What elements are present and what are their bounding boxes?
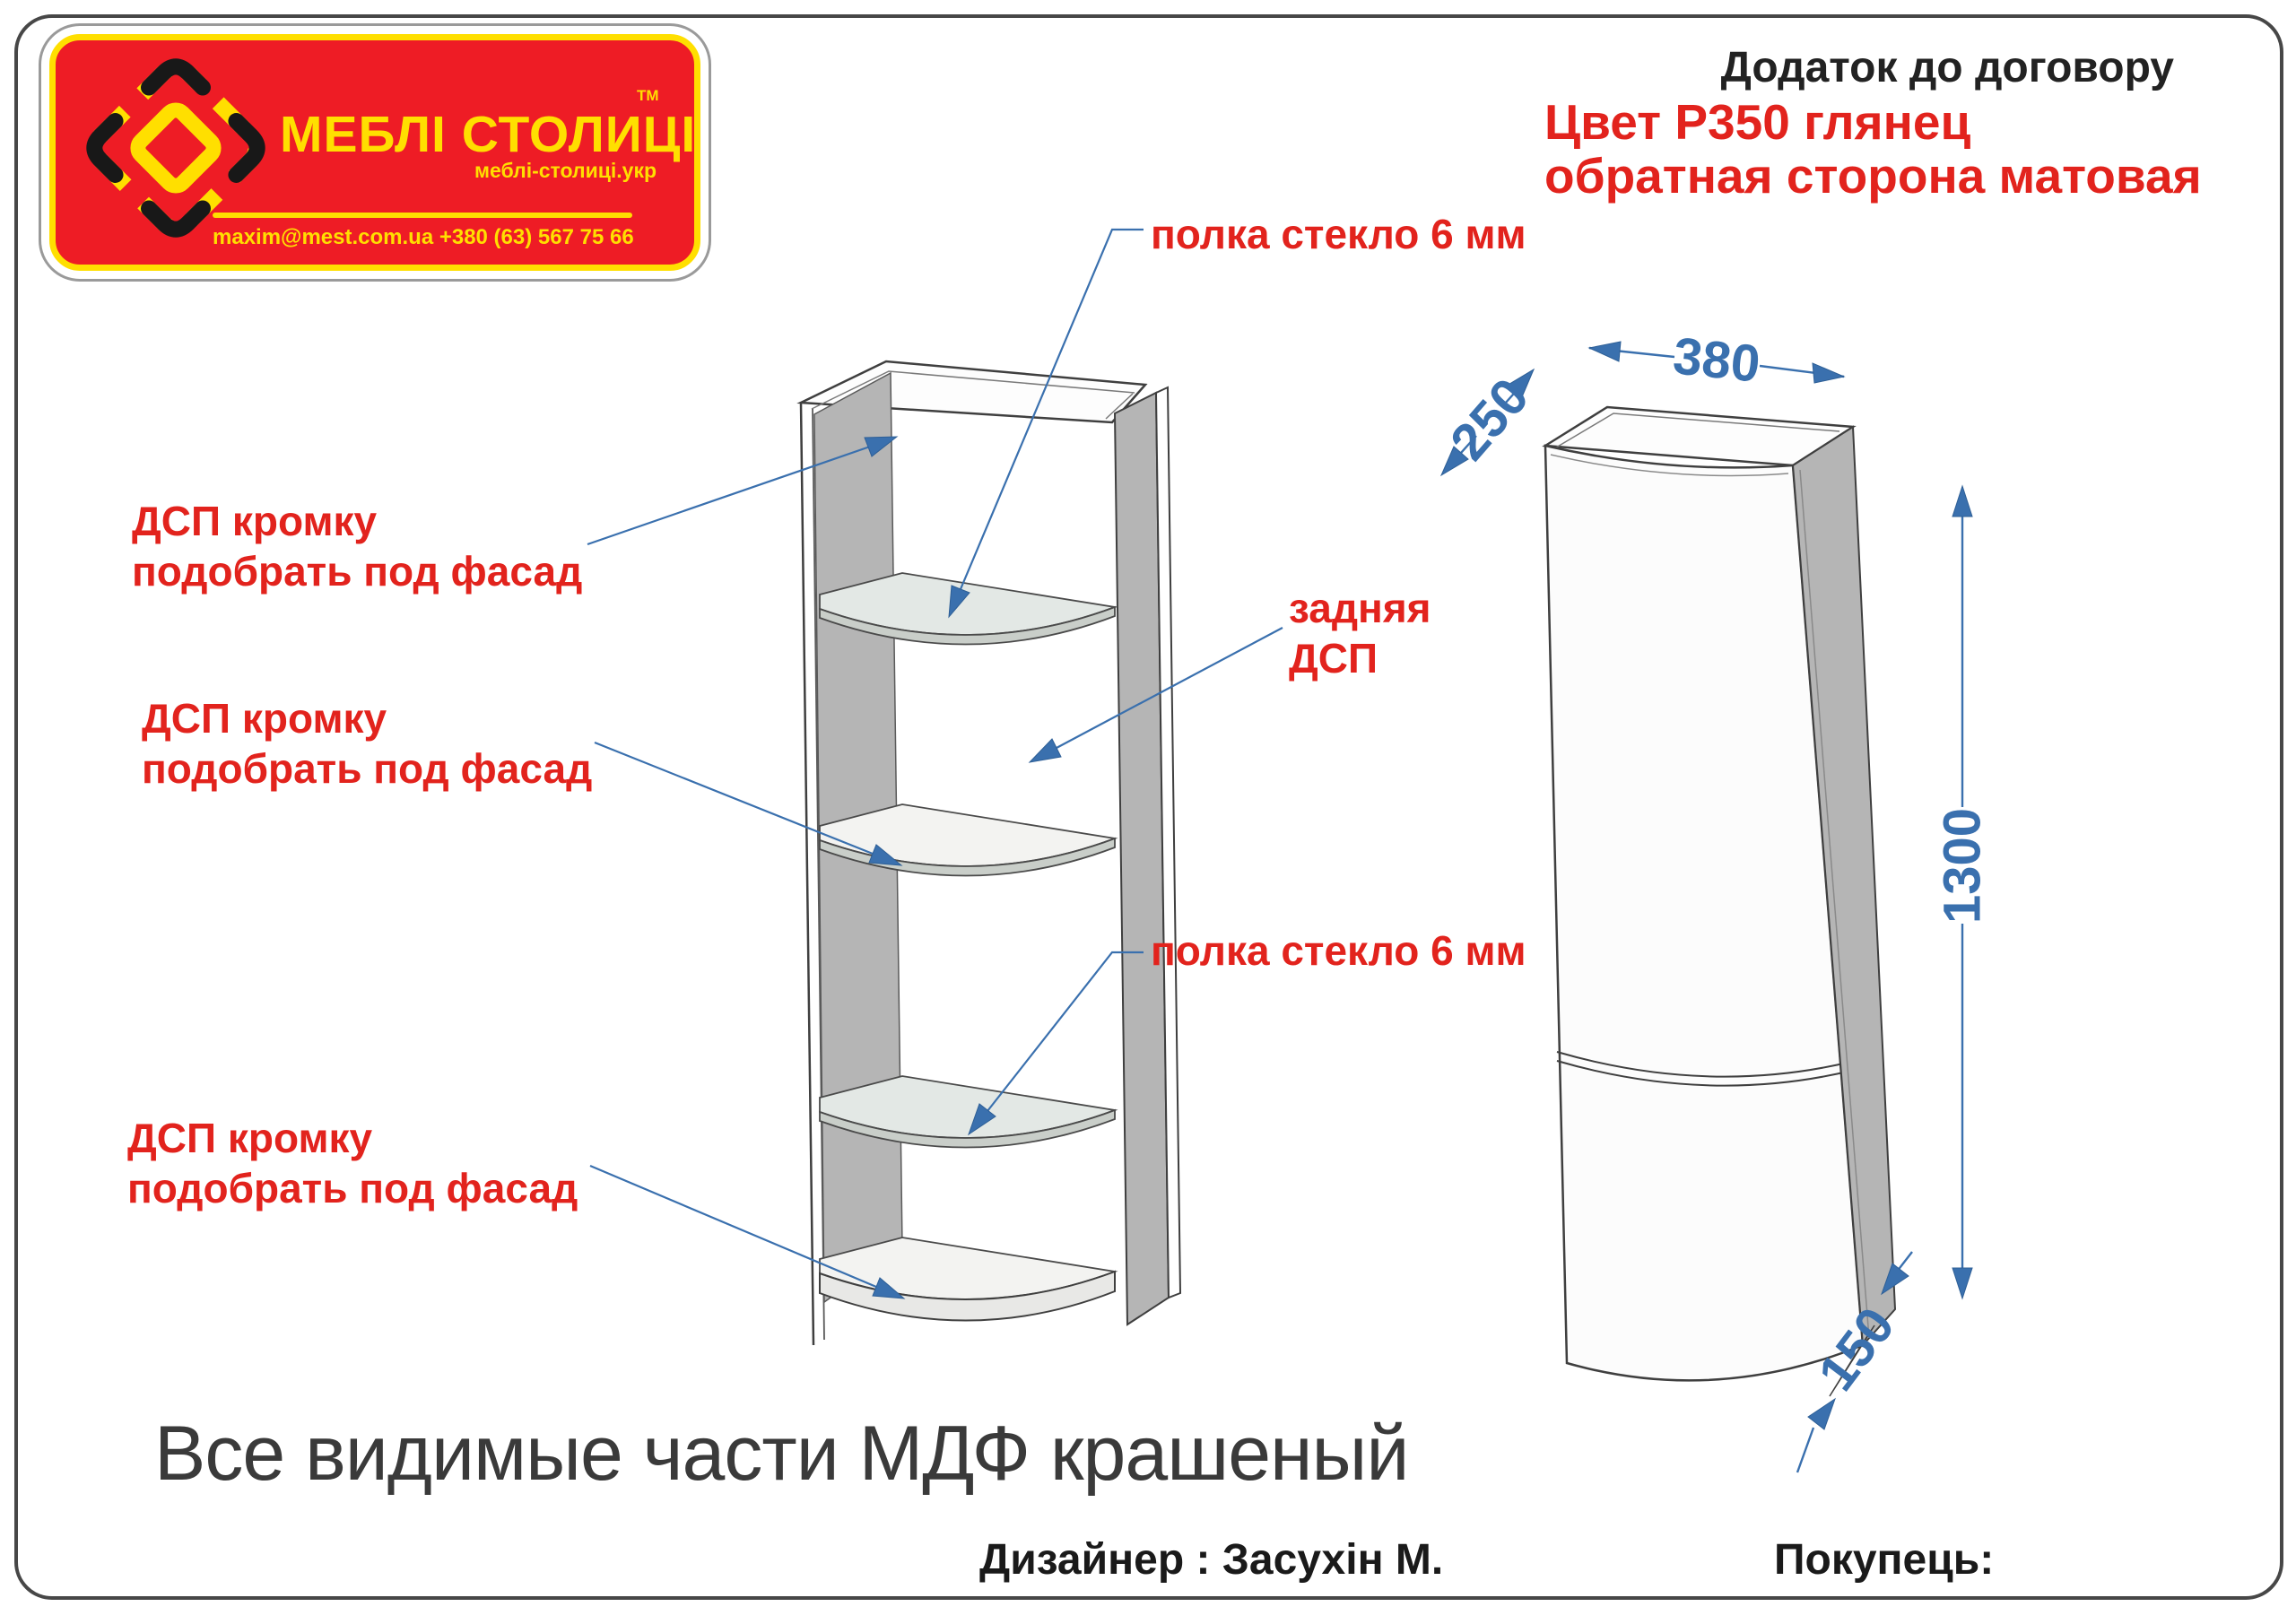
label-dsp-edge-mid-line1: ДСП кромку — [142, 693, 592, 743]
arrow-height-bottom — [1952, 1268, 1972, 1298]
left-stile-outer-edge — [801, 403, 813, 1345]
label-back-panel-line1: задняя — [1289, 583, 1431, 633]
arrow-height-top — [1952, 486, 1972, 517]
assembled-cabinet-drawing — [1545, 407, 1895, 1396]
label-back-panel-line2: ДСП — [1289, 633, 1431, 683]
label-dsp-edge-top: ДСП кромку подобрать под фасад — [132, 496, 582, 596]
label-dsp-edge-top-line2: подобрать под фасад — [132, 546, 582, 596]
dim-bottom-depth-line-lower — [1797, 1428, 1813, 1472]
contract-appendix-page: МЕБЛІ СТОЛИЦІ ТМ меблі-столиці.укр maxim… — [0, 0, 2296, 1624]
label-glass-shelf-bottom: полка стекло 6 мм — [1151, 925, 1526, 976]
label-dsp-edge-top-line1: ДСП кромку — [132, 496, 582, 546]
label-dsp-edge-bot-line1: ДСП кромку — [127, 1113, 578, 1163]
label-dsp-edge-mid-line2: подобрать под фасад — [142, 743, 592, 794]
designer-label: Дизайнер : Засухін М. — [979, 1535, 1443, 1585]
dim-height-value: 1300 — [1933, 777, 1993, 956]
arrow-back-panel — [1030, 739, 1061, 762]
label-glass-shelf-top: полка стекло 6 мм — [1151, 209, 1526, 259]
open-shelf-drawing — [801, 361, 1180, 1345]
leader-glass-shelf-bottom — [987, 952, 1144, 1111]
material-note: Все видимые части МДФ крашеный — [154, 1410, 1408, 1498]
label-dsp-edge-bot-line2: подобрать под фасад — [127, 1163, 578, 1213]
label-dsp-edge-mid: ДСП кромку подобрать под фасад — [142, 693, 592, 794]
label-back-panel: задняя ДСП — [1289, 583, 1431, 683]
arrow-width-left — [1589, 342, 1621, 361]
label-dsp-edge-bot: ДСП кромку подобрать под фасад — [127, 1113, 578, 1213]
arrow-width-right — [1813, 363, 1844, 383]
buyer-label: Покупець: — [1774, 1535, 1994, 1585]
